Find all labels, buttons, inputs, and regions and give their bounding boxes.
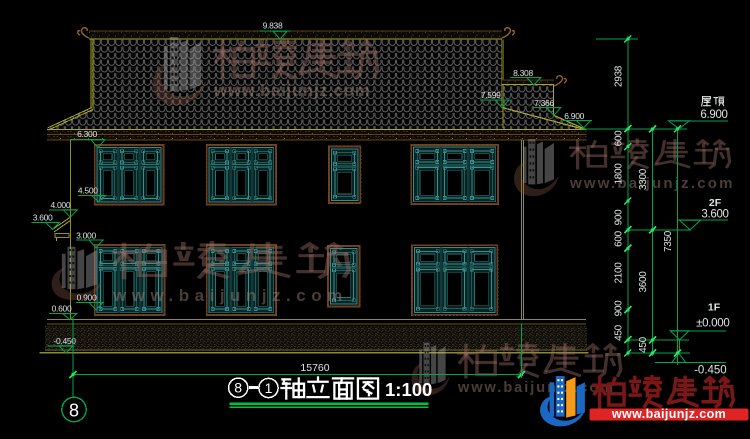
- svg-text:www.baijunjz.com: www.baijunjz.com: [457, 380, 615, 396]
- svg-text:7.599: 7.599: [481, 90, 501, 100]
- svg-text:7350: 7350: [663, 230, 674, 252]
- svg-text:1: 1: [265, 380, 273, 396]
- svg-text:600: 600: [614, 230, 625, 247]
- svg-text:4.000: 4.000: [51, 200, 71, 210]
- svg-text:450: 450: [614, 324, 625, 341]
- svg-text:-0.450: -0.450: [694, 364, 727, 376]
- svg-text:0.600: 0.600: [52, 304, 72, 314]
- svg-text:600: 600: [614, 130, 625, 147]
- svg-text:3600: 3600: [638, 271, 649, 293]
- svg-text:3300: 3300: [638, 168, 649, 190]
- svg-text:900: 900: [614, 209, 625, 226]
- svg-text:9.838: 9.838: [263, 21, 283, 31]
- svg-text:450: 450: [638, 336, 649, 353]
- svg-text:1F: 1F: [708, 302, 721, 314]
- svg-text:3.600: 3.600: [33, 212, 53, 222]
- svg-text:4.500: 4.500: [78, 186, 98, 196]
- svg-text:7.366: 7.366: [534, 98, 554, 108]
- svg-text:8: 8: [234, 380, 242, 396]
- svg-text:2F: 2F: [709, 197, 722, 209]
- svg-text:8.308: 8.308: [513, 68, 533, 78]
- svg-text:0.900: 0.900: [77, 293, 97, 303]
- svg-text:15760: 15760: [300, 362, 329, 374]
- svg-text:www.baijunjz.com: www.baijunjz.com: [213, 81, 370, 100]
- svg-text:2938: 2938: [614, 65, 625, 87]
- svg-text:6.900: 6.900: [564, 111, 584, 121]
- svg-text:±0.000: ±0.000: [696, 318, 729, 330]
- svg-text:3.000: 3.000: [76, 230, 96, 240]
- svg-text:www.baijunjz.com: www.baijunjz.com: [112, 286, 348, 305]
- svg-text:1800: 1800: [614, 163, 625, 185]
- svg-text:6.900: 6.900: [700, 109, 727, 121]
- svg-text:3.600: 3.600: [701, 208, 728, 220]
- svg-text:8: 8: [69, 401, 79, 421]
- svg-text:www.baijunjz.com: www.baijunjz.com: [611, 407, 726, 421]
- svg-text:2100: 2100: [614, 262, 625, 284]
- svg-text:www.baijunjz.com: www.baijunjz.com: [569, 175, 735, 192]
- svg-text:900: 900: [614, 300, 625, 317]
- svg-text:6.300: 6.300: [77, 129, 97, 139]
- svg-text:1:100: 1:100: [385, 379, 432, 400]
